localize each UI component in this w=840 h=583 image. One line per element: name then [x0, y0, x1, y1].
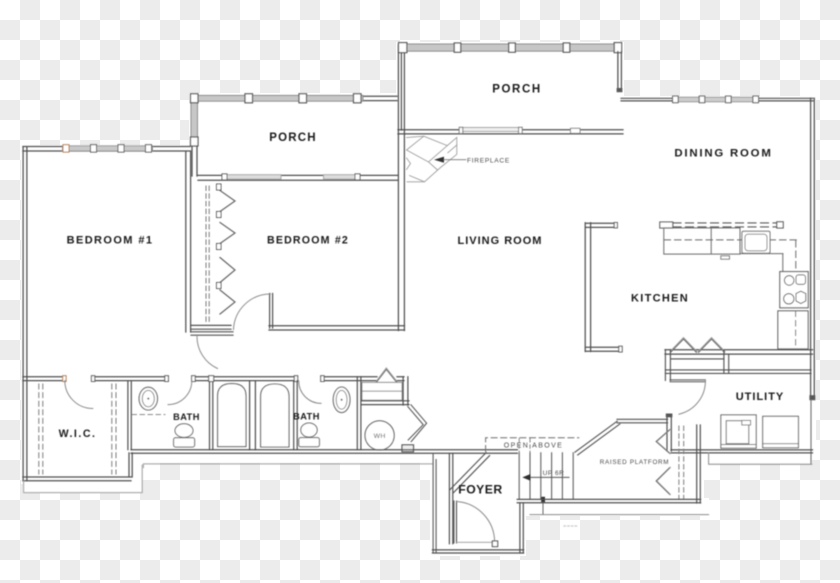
svg-text:KITCHEN: KITCHEN — [631, 293, 689, 305]
svg-text:BEDROOM #1: BEDROOM #1 — [67, 235, 154, 247]
svg-text:FOYER: FOYER — [458, 483, 502, 497]
svg-text:W.I.C.: W.I.C. — [59, 428, 97, 440]
svg-text:RAISED PLATFORM: RAISED PLATFORM — [600, 459, 670, 466]
svg-text:UTILITY: UTILITY — [736, 391, 785, 403]
svg-text:PORCH: PORCH — [492, 84, 542, 96]
svg-text:BEDROOM #2: BEDROOM #2 — [267, 235, 349, 247]
svg-text:FIREPLACE: FIREPLACE — [467, 157, 510, 164]
svg-text:BATH: BATH — [173, 412, 200, 422]
svg-text:UP 6R: UP 6R — [543, 470, 565, 477]
svg-text:LIVING ROOM: LIVING ROOM — [458, 235, 543, 247]
svg-text:WH: WH — [374, 433, 386, 440]
svg-text:OPEN ABOVE: OPEN ABOVE — [504, 443, 564, 450]
svg-text:PORCH: PORCH — [269, 132, 317, 144]
svg-text:BATH: BATH — [293, 412, 320, 422]
svg-text:DINING ROOM: DINING ROOM — [674, 148, 772, 160]
